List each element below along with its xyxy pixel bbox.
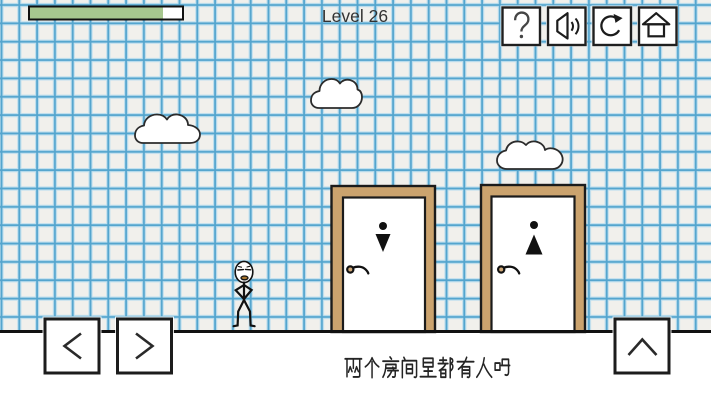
svg-text:Level 26: Level 26 bbox=[322, 6, 388, 26]
